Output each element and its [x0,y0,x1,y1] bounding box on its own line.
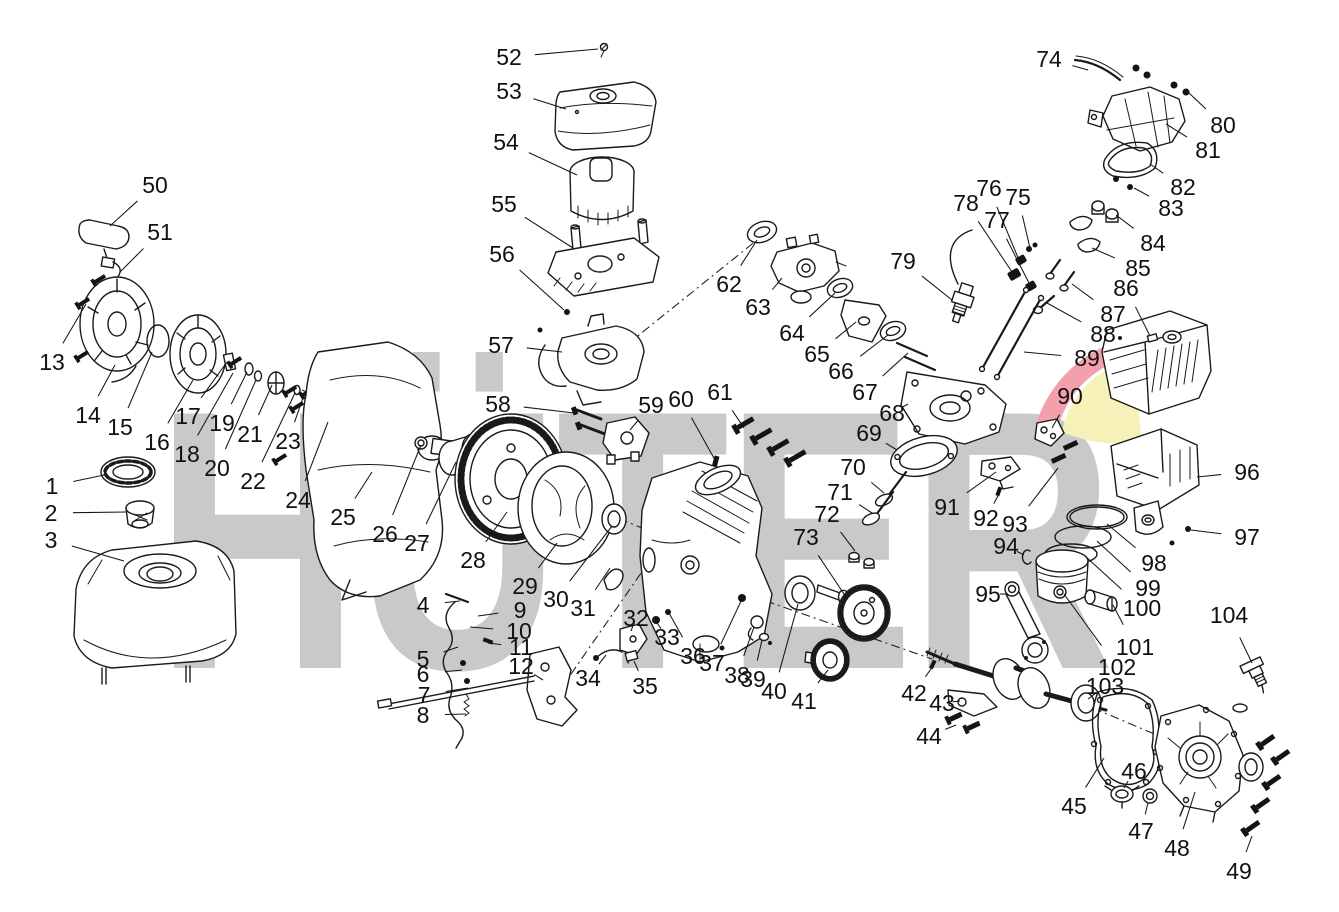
part-label-74: 74 [1036,46,1062,72]
part-label-91: 91 [934,494,960,520]
part-label-22: 22 [240,468,266,494]
part-label-90: 90 [1057,383,1083,409]
part-label-27: 27 [404,530,430,556]
part-label-81: 81 [1195,137,1221,163]
part-label-59: 59 [638,392,664,418]
part-label-77: 77 [984,207,1010,233]
part-label-25: 25 [330,504,356,530]
crankcase-cover [1155,705,1263,822]
valve-cover [1088,87,1185,151]
part-label-40: 40 [761,678,787,704]
recoil-starter-housing [80,277,154,382]
flywheel-nut [415,437,427,449]
part-label-41: 41 [791,688,817,714]
leader-line-104 [1240,637,1252,663]
fan-cover [518,452,614,564]
part-label-33: 33 [654,624,680,650]
part-label-15: 15 [107,414,133,440]
part-label-2: 2 [45,500,58,526]
leader-line-96 [1197,475,1221,477]
leader-line-47 [1145,803,1148,814]
part-label-54: 54 [493,129,519,155]
part-label-103: 103 [1086,673,1124,699]
part-label-17: 17 [175,403,201,429]
part-label-60: 60 [668,386,694,412]
part-label-42: 42 [901,680,927,706]
piston [1036,550,1088,603]
leader-line-54 [529,153,577,175]
part-label-84: 84 [1140,230,1166,256]
part-label-61: 61 [707,379,733,405]
part-label-55: 55 [491,191,517,217]
part-label-69: 69 [856,420,882,446]
fuel-cap [101,457,155,487]
part-label-49: 49 [1226,858,1252,884]
leader-line-101 [1113,605,1123,625]
leader-line-52 [535,49,598,55]
part-label-64: 64 [779,320,805,346]
rocker-parts [1034,201,1119,314]
part-label-80: 80 [1210,112,1236,138]
leader-line-83 [1134,188,1149,196]
leader-line-51 [120,249,143,272]
cover-bolts [1240,732,1292,837]
carb-gasket-outer [744,217,779,246]
part-label-12: 12 [508,653,534,679]
leader-line-87 [1072,284,1093,300]
part-label-83: 83 [1158,195,1184,221]
part-label-57: 57 [488,332,514,358]
valve-springs [1007,243,1038,292]
leader-line-85 [1092,248,1115,258]
part-label-37: 37 [699,650,725,676]
air-filter-element [570,157,634,225]
part-label-45: 45 [1061,793,1087,819]
part-label-50: 50 [142,172,168,198]
leader-line-55 [525,217,573,248]
spark-plug [946,230,977,325]
part-label-35: 35 [632,673,658,699]
part-label-73: 73 [793,524,819,550]
part-label-23: 23 [275,428,301,454]
leader-line-64 [809,293,835,317]
part-label-21: 21 [237,421,263,447]
part-label-28: 28 [460,547,486,573]
air-filter-cover [555,82,656,150]
part-label-86: 86 [1113,275,1139,301]
leader-line-1 [73,475,104,481]
part-label-98: 98 [1141,550,1167,576]
oil-sensor-plug [1233,657,1274,712]
leader-line-88 [1047,303,1081,322]
part-label-104: 104 [1210,602,1249,628]
part-label-16: 16 [144,429,170,455]
part-label-58: 58 [485,391,511,417]
part-label-67: 67 [852,379,878,405]
part-label-56: 56 [489,241,515,267]
fuel-strainer [126,501,154,528]
muffler-protector [1111,429,1199,546]
part-label-43: 43 [929,690,955,716]
part-label-18: 18 [174,441,200,467]
part-label-78: 78 [953,190,979,216]
valve-cover-gasket [1104,142,1157,190]
part-label-31: 31 [570,595,596,621]
starter-pulley [170,315,226,393]
exploded-parts-diagram: HÜTER [0,0,1339,912]
part-label-1: 1 [46,473,59,499]
part-label-63: 63 [745,294,771,320]
leader-line-82 [1150,164,1163,173]
leader-line-74 [1072,66,1088,70]
part-label-20: 20 [204,455,230,481]
leader-line-79 [922,276,952,300]
part-label-100: 100 [1123,595,1161,621]
part-label-19: 19 [209,410,235,436]
part-label-79: 79 [890,248,916,274]
part-label-48: 48 [1164,835,1190,861]
part-label-24: 24 [285,487,311,513]
part-label-51: 51 [147,219,173,245]
part-label-94: 94 [993,533,1019,559]
part-label-89: 89 [1074,345,1100,371]
leader-line-50 [110,201,138,226]
leader-line-97 [1191,530,1221,534]
part-label-70: 70 [840,454,866,480]
part-label-65: 65 [804,341,830,367]
part-label-68: 68 [879,400,905,426]
part-label-44: 44 [916,723,942,749]
diagram-svg: HÜTER [0,0,1339,912]
oil-filler-cap [1105,786,1157,808]
base-screw [564,309,570,315]
leader-line-62 [741,240,757,266]
part-label-97: 97 [1234,524,1260,550]
leader-line-80 [1189,93,1206,109]
air-filter-screw [601,44,608,58]
air-filter-base [548,219,659,296]
base-screw-2 [538,328,543,333]
part-label-14: 14 [75,402,101,428]
part-label-88: 88 [1090,321,1116,347]
part-label-34: 34 [575,665,601,691]
part-label-96: 96 [1234,459,1260,485]
front-bearing [602,504,626,534]
leader-line-49 [1246,836,1252,852]
part-label-30: 30 [543,586,569,612]
leader-line-2 [73,512,127,513]
part-label-53: 53 [496,78,522,104]
part-label-13: 13 [39,349,65,375]
part-label-3: 3 [45,527,58,553]
part-label-62: 62 [716,271,742,297]
part-label-26: 26 [372,521,398,547]
part-label-32: 32 [623,605,649,631]
part-label-46: 46 [1121,758,1147,784]
part-label-76: 76 [976,175,1002,201]
part-label-4: 4 [417,592,430,618]
part-label-66: 66 [828,358,854,384]
part-label-52: 52 [496,44,522,70]
main-bearing [785,576,815,610]
part-label-29: 29 [512,573,538,599]
part-label-95: 95 [975,581,1001,607]
part-label-92: 92 [973,505,999,531]
part-label-47: 47 [1128,818,1154,844]
leader-line-75 [1022,216,1030,248]
part-label-8: 8 [417,702,430,728]
leader-line-45 [1086,758,1104,788]
